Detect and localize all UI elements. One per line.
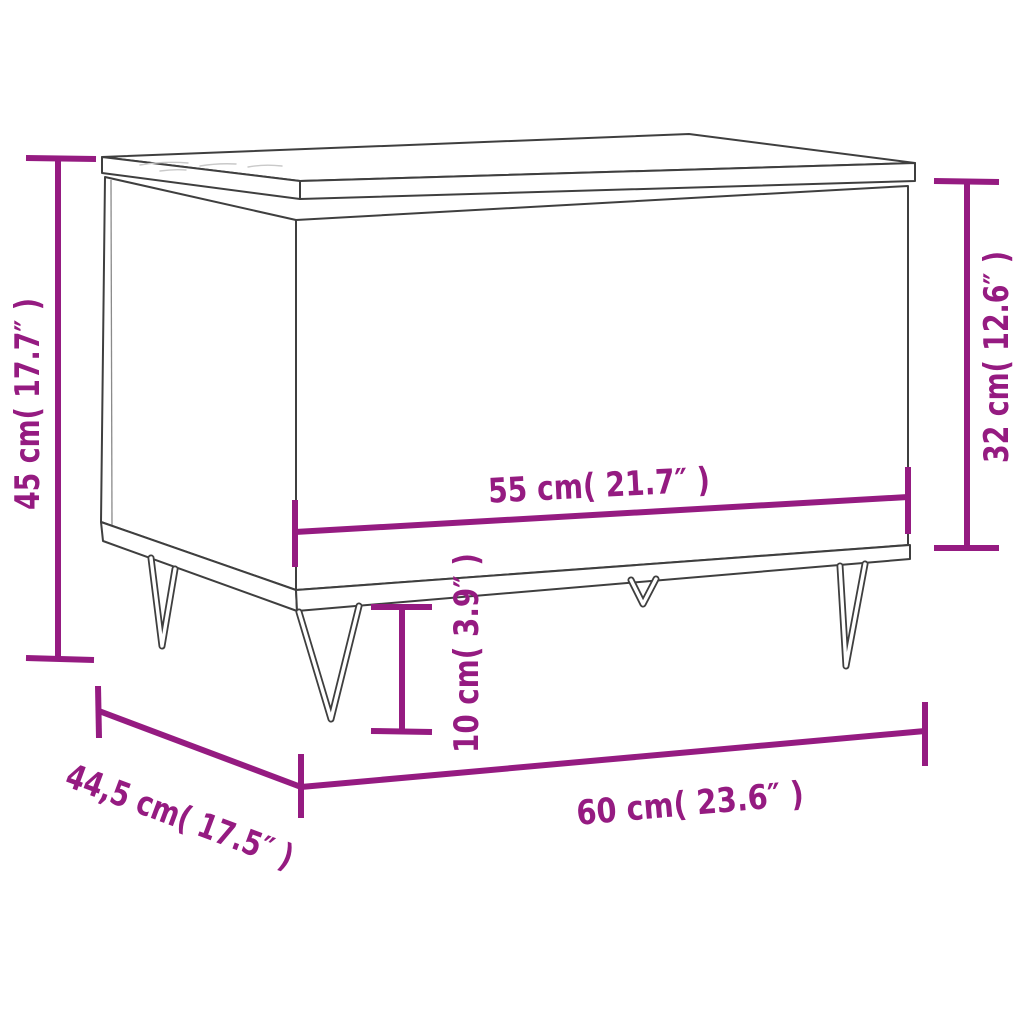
depth-line	[99, 711, 301, 787]
overall-height-cap-top	[26, 158, 96, 159]
dimension-depth: 44,5 cm( 17.5″ )	[60, 686, 301, 878]
furniture-diagram-canvas: 45 cm( 17.7″ ) 32 cm( 12.6″ ) 55 cm( 21.…	[0, 0, 1024, 1024]
dimension-body-height: 32 cm( 12.6″ )	[934, 181, 1017, 548]
hairpin-leg-front-right	[840, 564, 865, 666]
leg-height-label: 10 cm( 3.9″ )	[447, 553, 487, 753]
product-dimension-diagram: 45 cm( 17.7″ ) 32 cm( 12.6″ ) 55 cm( 21.…	[0, 0, 1024, 1024]
hairpin-leg-front-left	[299, 606, 359, 719]
hairpin-leg-back-left	[151, 558, 175, 646]
dimension-overall-width: 60 cm( 23.6″ )	[301, 702, 925, 834]
dimension-overall-height: 45 cm( 17.7″ )	[8, 158, 96, 660]
table-body-left-face	[101, 177, 296, 590]
depth-cap-left	[98, 686, 99, 738]
body-height-cap-top	[934, 181, 999, 182]
coffee-table-drawing	[101, 134, 915, 719]
overall-width-label: 60 cm( 23.6″ )	[575, 774, 806, 834]
overall-width-line	[301, 731, 925, 787]
leg-height-cap-bottom	[371, 731, 432, 732]
overall-height-cap-bottom	[26, 658, 94, 660]
overall-height-label: 45 cm( 17.7″ )	[8, 298, 48, 510]
body-height-label: 32 cm( 12.6″ )	[977, 251, 1017, 463]
hairpin-leg-back-right	[631, 579, 656, 604]
